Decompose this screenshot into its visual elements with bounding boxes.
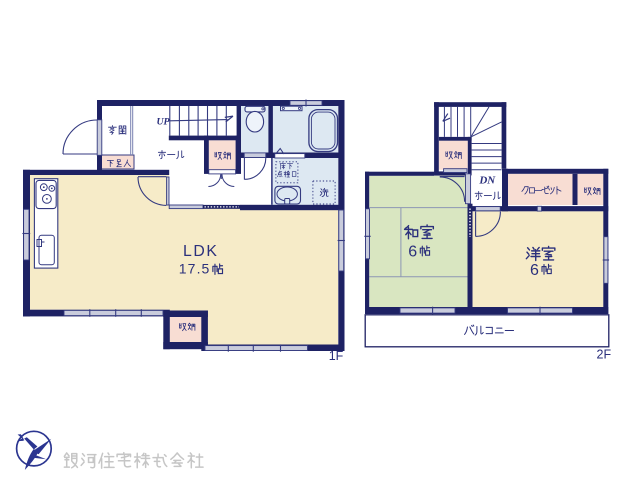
svg-text:UP: UP: [156, 116, 170, 127]
svg-text:6: 6: [408, 244, 417, 261]
svg-text:2F: 2F: [597, 348, 612, 362]
svg-text:LDK: LDK: [183, 243, 219, 260]
svg-text:1F: 1F: [329, 349, 344, 363]
svg-text:6: 6: [530, 262, 539, 279]
svg-text:17.5: 17.5: [179, 260, 211, 276]
svg-text:DN: DN: [478, 175, 496, 187]
